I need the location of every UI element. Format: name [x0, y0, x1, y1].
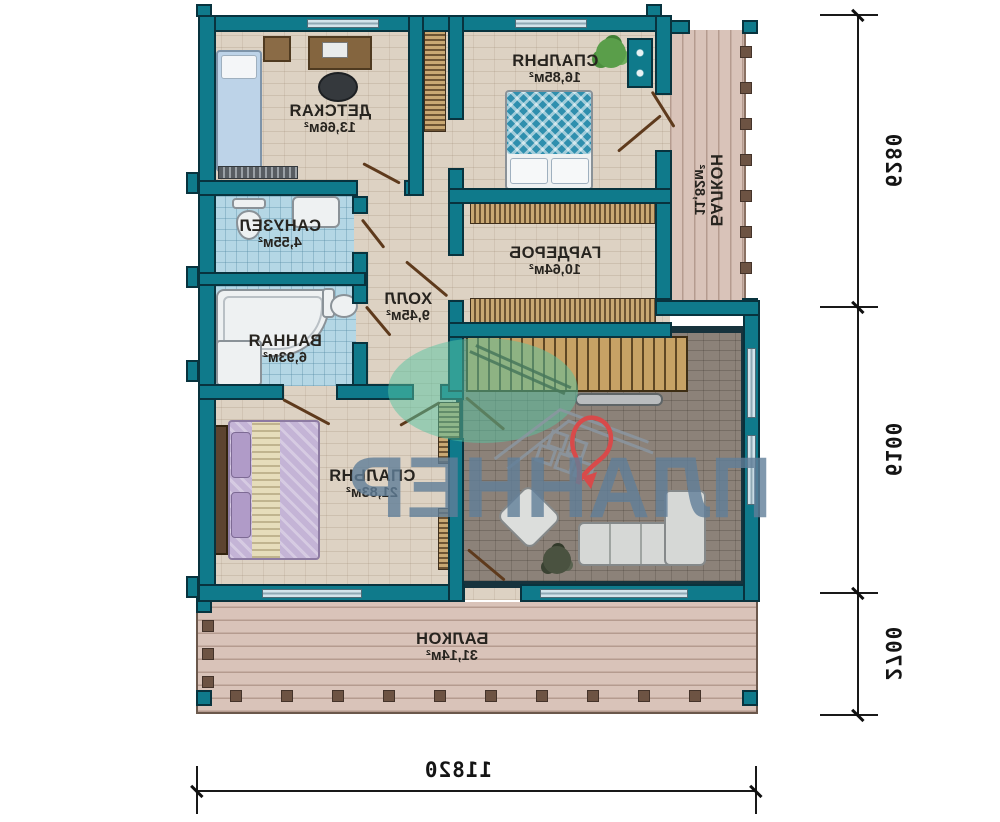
room-label-balkon-right: БАЛКОН 11,82м²: [683, 115, 725, 265]
dimension-label-2700: 2700: [881, 578, 905, 728]
wall-right-upper: [655, 15, 672, 95]
railing-post: [202, 648, 214, 660]
dimension-tick: [820, 14, 878, 16]
railing-post: [740, 262, 752, 274]
railing-post: [230, 690, 242, 702]
room-area: 10,64м²: [480, 263, 630, 279]
railing-post: [587, 690, 599, 702]
railing-post: [689, 690, 701, 702]
railing-post: [638, 690, 650, 702]
railing-post: [202, 676, 214, 688]
log-corner-block: [670, 20, 690, 34]
dimension-label-6100: 6100: [881, 374, 905, 524]
window-bottom-bedroom2: [262, 589, 362, 598]
wall-childroom-bottom: [198, 180, 358, 196]
pillow: [551, 158, 589, 184]
railing-post: [434, 690, 446, 702]
room-name: ДЕТСКАЯ: [255, 102, 405, 120]
wall-childroom-right: [408, 15, 424, 196]
wall-left: [198, 15, 216, 602]
log-corner-block: [742, 690, 758, 706]
railing-post: [740, 226, 752, 238]
wall-wc-right: [352, 196, 368, 214]
railing-post: [740, 82, 752, 94]
wall-top: [200, 15, 658, 32]
window-top-childroom: [307, 19, 379, 28]
room-name: БАЛКОН: [377, 630, 527, 648]
room-name: ХОЛЛ: [333, 290, 483, 308]
wall-balcony-living-divider: [655, 300, 760, 316]
dimension-line-bottom: [197, 790, 757, 792]
railing-post: [740, 118, 752, 130]
dimension-label-11820: 11820: [398, 758, 518, 782]
pillow: [510, 158, 548, 184]
railing-post: [740, 46, 752, 58]
railing-post: [740, 190, 752, 202]
dimension-tick: [820, 592, 878, 594]
dimension-tick: [820, 714, 878, 716]
bed-runner: [252, 422, 280, 558]
window-right-living-1: [747, 348, 756, 418]
pillow: [231, 432, 251, 478]
floor-plan-canvas: ПЛАННЕР ДЕТСКАЯ 13,66м² СПАЛЬНЯ 16,85м² …: [0, 0, 1000, 822]
dimension-label-6280: 6280: [881, 85, 905, 235]
dresser-teal: [627, 38, 653, 88]
room-name: ГАРДЕРОБ: [480, 244, 630, 262]
room-area: 13,66м²: [255, 121, 405, 137]
wall-spine: [448, 15, 464, 120]
dimension-tick: [820, 306, 878, 308]
room-label-spalnya1: СПАЛЬНЯ 16,85м²: [480, 52, 630, 87]
room-area: 4,55м²: [205, 236, 355, 252]
wall-wc-divider: [198, 272, 366, 286]
wall-spine: [448, 168, 464, 256]
window-bottom-living: [540, 589, 688, 598]
room-label-detskaya: ДЕТСКАЯ 13,66м²: [255, 102, 405, 137]
railing-post: [740, 154, 752, 166]
office-chair: [318, 72, 358, 102]
pillow: [231, 492, 251, 538]
room-label-balkon-bottom: БАЛКОН 31,14м²: [377, 630, 527, 665]
plant: [543, 546, 571, 574]
wall-right-upper: [655, 150, 672, 300]
log-corner-block: [196, 690, 212, 706]
closet-rack-hall: [424, 30, 446, 132]
room-area: 9,45м²: [333, 309, 483, 325]
room-area: 6,93м²: [210, 351, 360, 367]
log-corner-block: [742, 20, 758, 34]
window-top-bedroom1: [515, 19, 587, 28]
wall-wardrobe-top: [448, 188, 672, 204]
pillow: [221, 55, 257, 79]
laptop: [322, 42, 348, 58]
radiator: [218, 166, 298, 179]
wardrobe-rack-bottom: [470, 298, 656, 324]
room-name: БАЛКОН: [707, 115, 725, 265]
room-area: 11,82м²: [690, 115, 706, 265]
room-name: СПАЛЬНЯ: [480, 52, 630, 70]
watermark-text: ПЛАННЕР: [352, 440, 772, 536]
railing-post: [485, 690, 497, 702]
room-area: 31,14м²: [377, 649, 527, 665]
railing-post: [536, 690, 548, 702]
room-label-vannaya: ВАННАЯ 6,93м²: [210, 332, 360, 367]
blanket-patterned: [507, 92, 591, 154]
toilet-tank: [232, 198, 266, 209]
room-label-garderob: ГАРДЕРОБ 10,64м²: [480, 244, 630, 279]
room-name: ВАННАЯ: [210, 332, 360, 350]
room-area: 16,85м²: [480, 71, 630, 87]
room-label-holl: ХОЛЛ 9,45м²: [333, 290, 483, 325]
railing-post: [281, 690, 293, 702]
room-name: САНУЗЕЛ: [205, 217, 355, 235]
dimension-line-right: [857, 15, 859, 716]
railing-post: [202, 620, 214, 632]
railing-post: [332, 690, 344, 702]
railing-post: [383, 690, 395, 702]
room-label-sanuzel: САНУЗЕЛ 4,55м²: [205, 217, 355, 252]
nightstand: [263, 36, 291, 62]
wall-bedroom2-top: [198, 384, 284, 400]
